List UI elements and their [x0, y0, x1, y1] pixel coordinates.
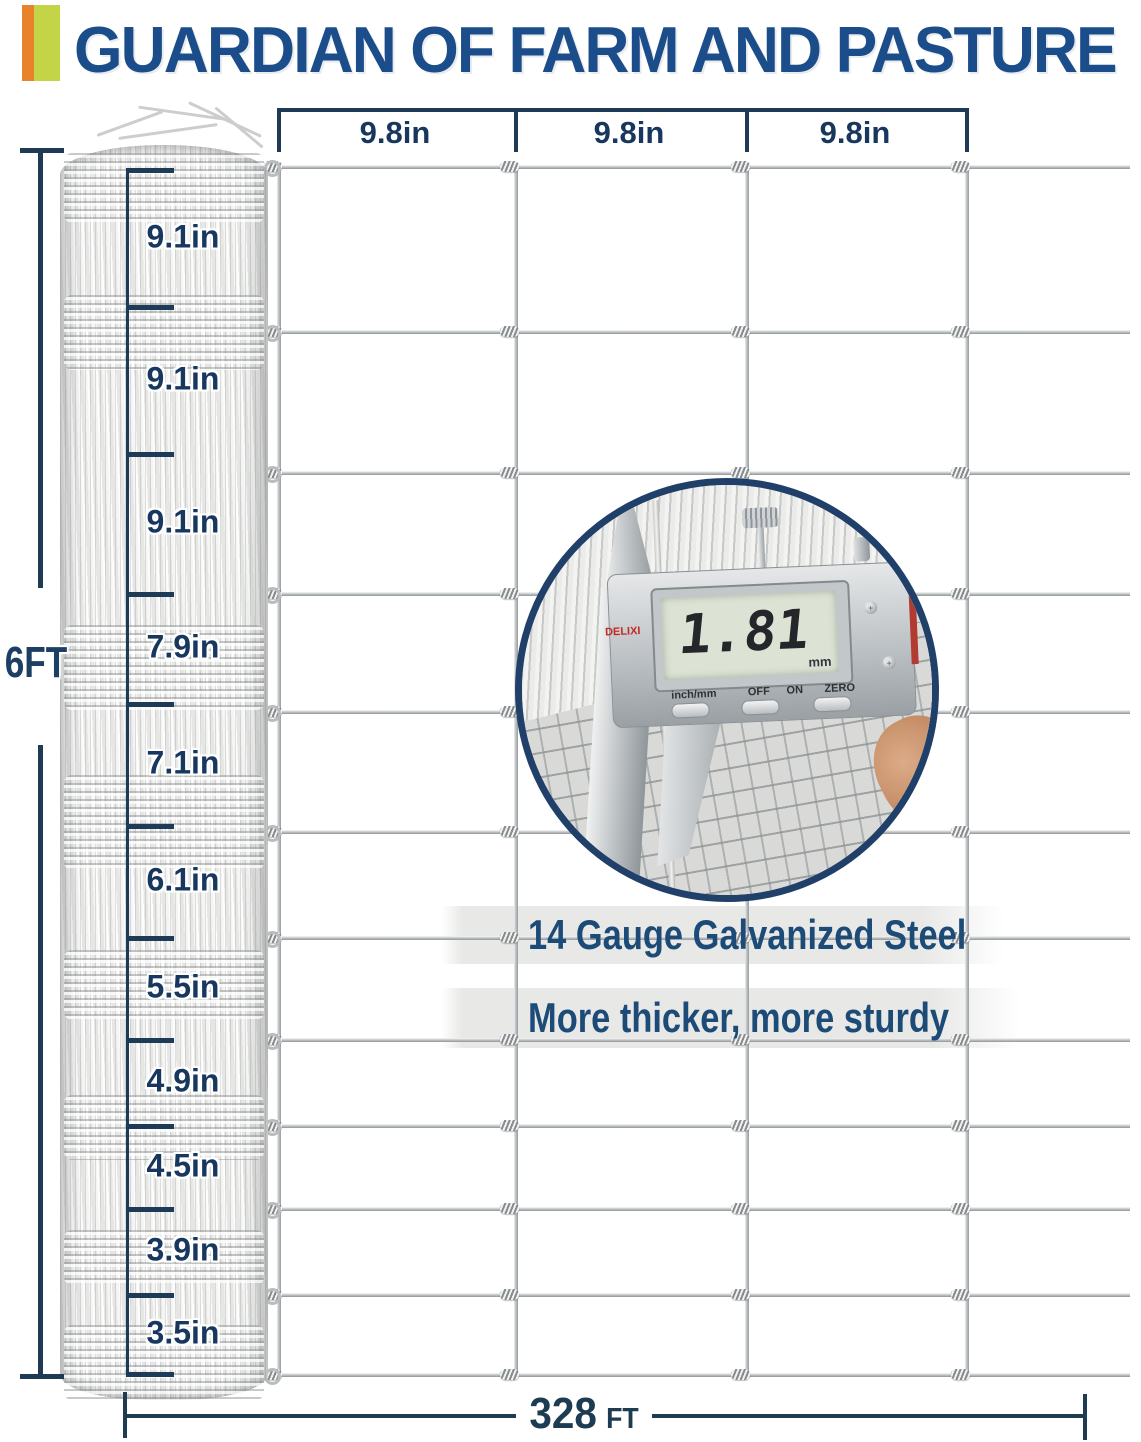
roll-ruler-tick — [126, 305, 174, 310]
fence-horizontal-wire — [252, 1207, 1130, 1211]
caliper-button-label: ON — [786, 684, 803, 697]
top-bracket-line — [277, 108, 969, 112]
height-bracket-lower-line — [38, 745, 43, 1378]
roll-spacing-label: 9.1in — [147, 218, 220, 255]
roll-ruler-tick — [126, 824, 174, 829]
wire-knot-icon — [731, 326, 750, 337]
roll-ruler-tick — [126, 1207, 174, 1212]
fence-vertical-wire — [965, 163, 969, 1375]
caliper-brand-label: DELIXI — [605, 625, 641, 639]
wire-knot-icon — [500, 161, 519, 172]
wire-knot-icon — [731, 1289, 750, 1300]
roll-spacing-label: 6.1in — [147, 862, 220, 899]
length-value: 328 — [529, 1389, 597, 1439]
roll-ruler-tick — [126, 1293, 174, 1298]
fence-vertical-wire — [514, 163, 518, 1375]
wire-knot-icon — [951, 826, 970, 837]
roll-spacing-label: 7.9in — [147, 629, 220, 666]
top-bracket-tick — [277, 108, 281, 152]
roll-ruler-tick — [126, 1124, 174, 1129]
wire-knot-icon — [731, 1203, 750, 1214]
roll-ruler-tick — [126, 1038, 174, 1043]
logo-orange-bar-icon — [22, 5, 34, 81]
caliper-thumbwheel — [742, 507, 779, 529]
length-dimension-label: 328 FT — [529, 1389, 638, 1439]
caliper-lock-screw — [853, 537, 870, 562]
top-bracket-tick — [514, 108, 518, 152]
wire-knot-icon — [951, 1034, 970, 1045]
wire-knot-icon — [731, 1369, 750, 1380]
fence-vertical-wire — [277, 163, 281, 1375]
feature-line-1: 14 Gauge Galvanized Steel — [528, 906, 966, 964]
roll-spacing-label: 3.5in — [147, 1314, 220, 1351]
top-bracket-tick — [745, 108, 749, 152]
wire-knot-icon — [731, 467, 750, 478]
lcd-reading: 1.81 — [676, 597, 812, 666]
logo-green-bar-icon — [34, 5, 60, 81]
roll-ruler-tick — [126, 592, 174, 597]
wire-knot-icon — [500, 932, 519, 943]
wire-knot-icon — [500, 1034, 519, 1045]
roll-spacing-label: 4.9in — [147, 1063, 220, 1100]
wire-knot-icon — [500, 1203, 519, 1214]
wire-knot-icon — [951, 1369, 970, 1380]
fence-horizontal-wire — [252, 330, 1130, 334]
roll-ruler-tick — [126, 702, 174, 707]
wire-knot-icon — [951, 326, 970, 337]
fence-horizontal-wire — [252, 165, 1130, 169]
roll-weave-band — [64, 775, 264, 870]
wire-knot-icon — [951, 588, 970, 599]
lcd-screen: 1.81 mm — [661, 590, 839, 680]
roll-spacing-label: 4.5in — [147, 1147, 220, 1184]
wire-knot-icon — [731, 1120, 750, 1131]
wire-knot-icon — [951, 1289, 970, 1300]
wire-knot-icon — [951, 467, 970, 478]
wire-knot-icon — [500, 326, 519, 337]
caliper-button — [741, 699, 780, 716]
roll-spacing-label: 9.1in — [147, 504, 220, 541]
wire-knot-icon — [500, 1369, 519, 1380]
wire-knot-icon — [731, 161, 750, 172]
wire-knot-icon — [951, 1203, 970, 1214]
wire-knot-icon — [951, 161, 970, 172]
roll-spacing-label: 3.9in — [147, 1232, 220, 1269]
wire-knot-icon — [500, 826, 519, 837]
roll-ruler-tick — [126, 936, 174, 941]
wire-knot-icon — [500, 1289, 519, 1300]
length-unit: FT — [606, 1403, 639, 1436]
fingertip — [857, 700, 939, 841]
roll-spacing-label: 5.5in — [147, 969, 220, 1006]
top-bracket-tick — [965, 108, 969, 152]
wire-knot-icon — [951, 706, 970, 717]
lcd-unit: mm — [808, 654, 832, 670]
caliper-button-label: inch/mm — [671, 688, 717, 702]
roll-spacing-label: 9.1in — [147, 360, 220, 397]
caliper-inset-photo: DELIXI + + 1.81 mm inch/mmOFFONZERO — [515, 478, 939, 902]
wire-knot-icon — [500, 588, 519, 599]
field-fence-infographic: GUARDIAN OF FARM AND PASTURE 14 Gauge Ga… — [0, 0, 1141, 1442]
height-bracket-bottom-cap — [20, 1374, 64, 1379]
length-bracket-right-tick — [1083, 1394, 1087, 1440]
wire-knot-icon — [500, 467, 519, 478]
length-bracket-right-line — [652, 1414, 1085, 1418]
fence-horizontal-wire — [252, 1124, 1130, 1128]
roll-ruler-tick — [126, 168, 174, 173]
top-dimension-label: 9.8in — [820, 115, 891, 151]
caliper-button — [671, 702, 710, 719]
wire-knot-icon — [500, 1120, 519, 1131]
caliper-button-label: OFF — [748, 685, 771, 698]
length-bracket-left-line — [125, 1414, 516, 1418]
fence-horizontal-wire — [252, 1373, 1130, 1377]
roll-ruler-line — [126, 168, 129, 1374]
roll-ruler-tick — [126, 1372, 174, 1377]
fence-horizontal-wire — [252, 1293, 1130, 1297]
caliper-button — [813, 696, 852, 713]
height-bracket-upper-line — [38, 150, 43, 588]
roll-weave-band — [64, 153, 264, 223]
roll-spacing-label: 7.1in — [147, 745, 220, 782]
height-dimension-label: 6FT — [5, 638, 68, 688]
roll-ruler-tick — [126, 452, 174, 457]
top-dimension-label: 9.8in — [594, 115, 665, 151]
caliper-button-label: ZERO — [824, 682, 855, 695]
digital-caliper: DELIXI + + 1.81 mm inch/mmOFFONZERO — [515, 478, 939, 902]
page-title: GUARDIAN OF FARM AND PASTURE — [74, 12, 1116, 87]
wire-knot-icon — [951, 1120, 970, 1131]
feature-line-2: More thicker, more sturdy — [528, 988, 949, 1048]
top-dimension-label: 9.8in — [360, 115, 431, 151]
fence-horizontal-wire — [252, 471, 1130, 475]
